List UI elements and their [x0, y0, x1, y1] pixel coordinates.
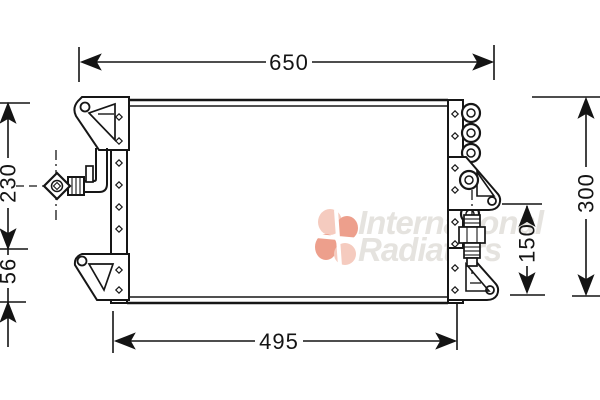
dimension-300: 300 [532, 97, 600, 296]
dimension-650: 650 [79, 45, 494, 82]
dim-56-label: 56 [0, 258, 21, 284]
dim-650-label: 650 [269, 50, 309, 75]
radiator-technical-drawing: 650 230 56 300 [0, 0, 600, 400]
bracket-bottom-left [75, 254, 129, 300]
dim-150-label: 150 [515, 223, 540, 263]
dimension-495: 495 [113, 303, 457, 354]
catalog-drawing-page: International Radiators [0, 0, 600, 400]
dim-230-label: 230 [0, 163, 21, 203]
valve-hex-body [44, 173, 70, 199]
condenser-core [127, 100, 448, 303]
dim-495-label: 495 [259, 329, 299, 354]
inlet-valve [16, 150, 93, 220]
pipe-clamp-rings-top [462, 104, 480, 162]
dim-300-label: 300 [574, 173, 599, 213]
bleed-stub [86, 166, 93, 182]
dimension-230-56: 230 56 [0, 103, 30, 347]
dimension-150: 150 [502, 204, 545, 295]
rail-vent-holes [116, 111, 458, 293]
